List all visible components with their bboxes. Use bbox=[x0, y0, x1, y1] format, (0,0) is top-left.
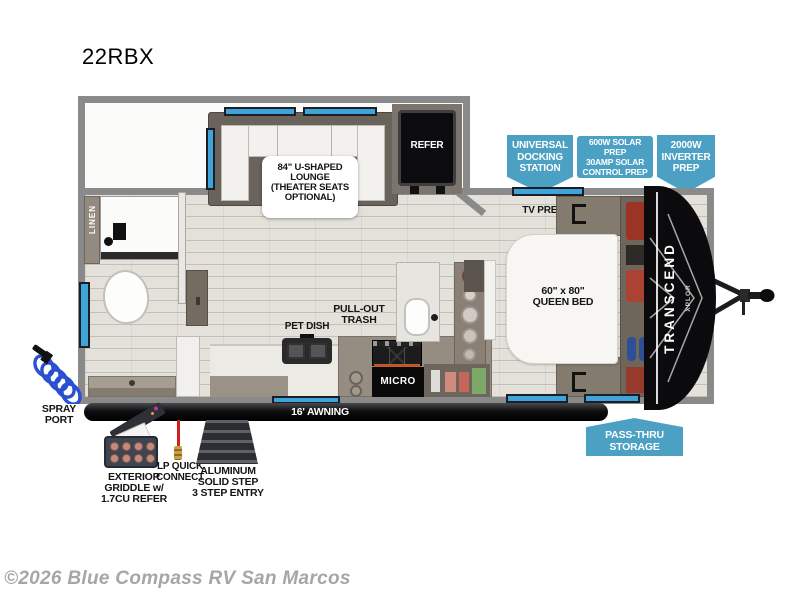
speaker-icon bbox=[349, 371, 363, 385]
microwave-label: MICRO bbox=[372, 377, 424, 388]
page-title: 22RBX bbox=[82, 44, 154, 70]
griddle-lid-dot bbox=[153, 406, 158, 411]
pet-dish-handle bbox=[300, 334, 314, 338]
cap-pinstripe bbox=[656, 192, 658, 404]
lounge-left-arm bbox=[221, 125, 249, 201]
burner-icon bbox=[134, 454, 143, 463]
badge-pass-thru-storage: PASS-THRU STORAGE bbox=[586, 418, 683, 456]
stove bbox=[372, 340, 422, 366]
hitch-icon bbox=[706, 272, 776, 322]
pull-out-trash-label: PULL-OUT TRASH bbox=[320, 304, 398, 326]
linen-cabinet: LINEN bbox=[84, 196, 100, 264]
badge-inverter-prep: 2000W INVERTER PREP bbox=[657, 135, 715, 193]
lp-connector-icon bbox=[174, 446, 182, 460]
bedroom-window-bottom bbox=[584, 394, 640, 403]
vanity-front bbox=[89, 388, 175, 396]
burner-icon bbox=[122, 454, 131, 463]
refer-foot bbox=[410, 186, 419, 194]
speaker-icon bbox=[350, 385, 362, 397]
burner-icon bbox=[110, 454, 119, 463]
griddle-lid-dot bbox=[150, 411, 154, 415]
lounge-window bbox=[224, 107, 296, 116]
awning-label: 16' AWNING bbox=[265, 407, 375, 418]
bath-vanity bbox=[88, 376, 176, 397]
utility-item bbox=[445, 372, 456, 392]
entry-steps-icon bbox=[196, 420, 258, 464]
badge-solar-prep: 600W SOLAR PREP 30AMP SOLAR CONTROL PREP bbox=[577, 136, 653, 178]
lounge-right-arm bbox=[357, 125, 385, 201]
kitchen-sink bbox=[404, 298, 430, 336]
entry-wall bbox=[484, 260, 496, 340]
burner-icon bbox=[122, 442, 131, 451]
utility-item bbox=[431, 370, 440, 392]
kitchen-counter-front bbox=[210, 376, 288, 397]
plate-icon bbox=[461, 306, 479, 324]
linen-label: LINEN bbox=[88, 205, 97, 234]
shower bbox=[100, 196, 180, 260]
bath-wall bbox=[178, 192, 186, 304]
shower-fixture-icon bbox=[113, 223, 126, 240]
pet-bowl bbox=[309, 343, 327, 359]
badge-universal-docking-station: UNIVERSAL DOCKING STATION bbox=[507, 135, 573, 193]
plate-icon bbox=[462, 328, 478, 344]
cushion-seam bbox=[277, 125, 278, 157]
brand-sub-label: XPLOR bbox=[685, 284, 692, 311]
faucet-icon bbox=[129, 380, 135, 386]
cabinet-handle bbox=[196, 297, 200, 305]
queen-bed-label: 60" x 80" QUEEN BED bbox=[513, 286, 613, 308]
refer-label: REFER bbox=[398, 141, 456, 152]
plate-icon bbox=[463, 348, 476, 361]
bedroom-window-bottom bbox=[506, 394, 568, 403]
entry-steps-label: ALUMINUM SOLID STEP 3 STEP ENTRY bbox=[188, 466, 268, 499]
burner-icon bbox=[134, 442, 143, 451]
shower-head-icon bbox=[104, 237, 113, 246]
shoes-icon bbox=[627, 337, 636, 361]
nightstand bbox=[556, 196, 622, 236]
lp-connect-line bbox=[177, 420, 180, 447]
bath-cabinet bbox=[186, 270, 208, 326]
spray-port-label: SPRAY PORT bbox=[28, 404, 90, 426]
pet-bowl bbox=[287, 343, 305, 359]
burner-icon bbox=[146, 442, 155, 451]
spray-port-icon bbox=[28, 342, 82, 404]
pet-dish bbox=[282, 338, 332, 364]
bedroom-window-top bbox=[512, 187, 584, 196]
utility-panel bbox=[424, 364, 490, 397]
utility-item bbox=[459, 372, 469, 392]
brand-label: TRANSCEND bbox=[662, 242, 677, 354]
sink-faucet-icon bbox=[431, 314, 438, 321]
refer-foot bbox=[436, 186, 445, 194]
burner-grid bbox=[375, 347, 419, 364]
tv-bracket-icon bbox=[572, 372, 586, 392]
bath-window bbox=[79, 282, 90, 348]
bath-partition bbox=[176, 336, 200, 397]
tv-bracket-icon bbox=[572, 204, 586, 224]
lounge-side-window bbox=[206, 128, 215, 190]
utility-item bbox=[472, 368, 486, 394]
xplor-x-graphic bbox=[644, 186, 716, 410]
front-cap: TRANSCEND XPLOR bbox=[644, 186, 716, 410]
cushion-seam bbox=[331, 125, 332, 157]
burner-icon bbox=[110, 442, 119, 451]
entry-door-header bbox=[464, 260, 484, 292]
lounge-window bbox=[303, 107, 377, 116]
floorplan-image: 22RBX UNIVERSAL DOCKING STATION 600W SOL… bbox=[0, 0, 800, 600]
shower-threshold bbox=[101, 252, 179, 259]
lounge-label: 84" U-SHAPED LOUNGE (THEATER SEATS OPTIO… bbox=[262, 163, 358, 203]
watermark: ©2026 Blue Compass RV San Marcos bbox=[4, 568, 351, 590]
